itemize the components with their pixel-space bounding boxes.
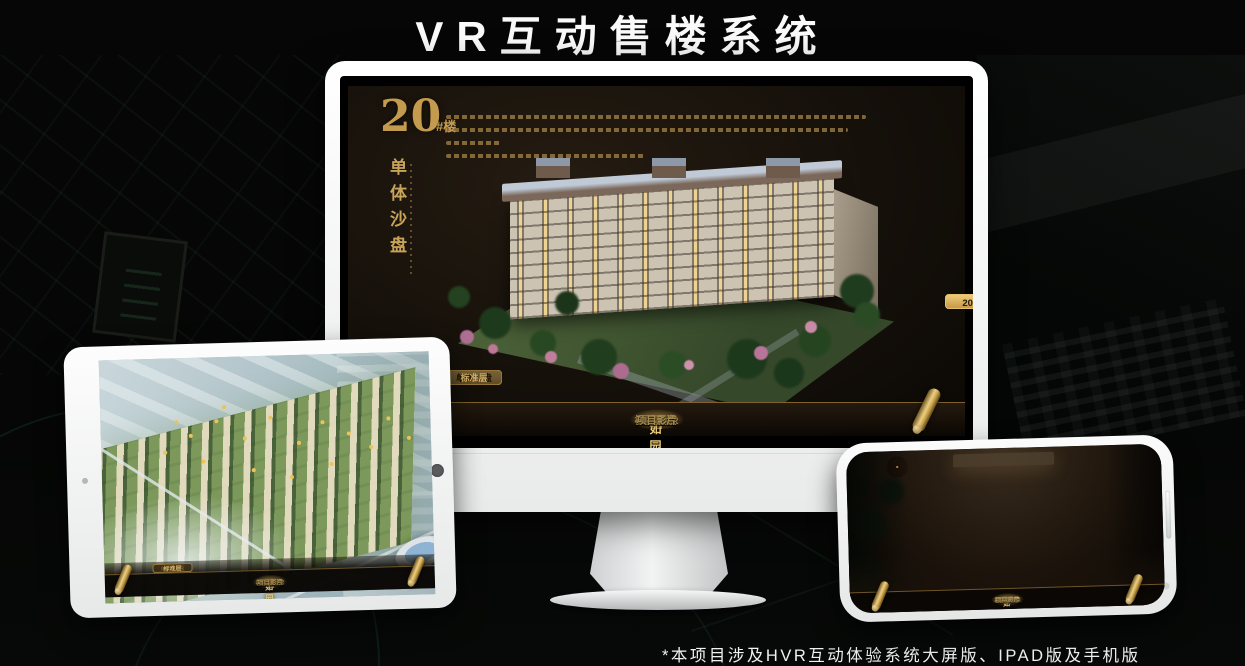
tablet-screen: 项目沙盘 单体沙盘 标准层 周边交通 三维沙盘 样板间VR 如园 户型鉴赏 园林… xyxy=(99,351,436,603)
monitor-stand-base xyxy=(550,590,766,610)
page-title: VR互动售楼系统 xyxy=(0,3,1245,64)
model-roof-gable xyxy=(766,158,800,178)
promo-page: VR互动售楼系统 20 #楼 单体沙盘 xyxy=(0,0,1245,666)
phone-mockup: 周边交通 三维沙盘 样板间VR 如园 户型鉴赏 园林漫游 项目影片 xyxy=(836,434,1178,622)
nav-item-project-film[interactable]: 项目影片 xyxy=(630,409,684,430)
scene-panel[interactable] xyxy=(896,466,898,468)
tablet-mockup: 项目沙盘 单体沙盘 标准层 周边交通 三维沙盘 样板间VR 如园 户型鉴赏 园林… xyxy=(63,337,456,619)
background-plaque xyxy=(92,231,188,342)
model-roof-gable xyxy=(536,158,570,178)
floor-button-20-selected[interactable]: 20#楼 xyxy=(945,294,973,309)
section-title-vertical: 单体沙盘 xyxy=(384,158,409,262)
background-map-left xyxy=(0,55,345,375)
nav-item-project-film[interactable]: 项目影片 xyxy=(991,592,1023,606)
building-model[interactable] xyxy=(444,136,914,416)
model-building-sidewall xyxy=(834,189,878,313)
footnote: *本项目涉及HVR互动体验系统大屏版、IPAD版及手机版 xyxy=(662,642,1141,666)
building-number-badges xyxy=(163,451,167,455)
tab-standard-floor[interactable]: 标准层 xyxy=(446,370,502,385)
model-roof-gable xyxy=(652,158,686,178)
phone-screen: 周边交通 三维沙盘 样板间VR 如园 户型鉴赏 园林漫游 项目影片 xyxy=(846,444,1165,614)
nav-item-project-film[interactable]: 项目影片 xyxy=(253,574,287,589)
tablet-camera-dot xyxy=(82,478,88,484)
model-flower-shrubs xyxy=(488,344,498,354)
background-aerial-right xyxy=(977,55,1245,445)
tablet-home-button xyxy=(431,464,444,477)
monitor-stand-neck xyxy=(590,510,728,596)
scene-panel-strip xyxy=(896,460,1109,572)
building-number-headline: 20 xyxy=(380,95,441,139)
description-text-line xyxy=(446,128,848,132)
vertical-subtitle-marks xyxy=(410,162,412,274)
phone-speaker-slot xyxy=(1165,490,1171,538)
description-text-line xyxy=(446,115,866,119)
model-building-facade xyxy=(510,179,834,320)
model-trees xyxy=(448,286,470,308)
